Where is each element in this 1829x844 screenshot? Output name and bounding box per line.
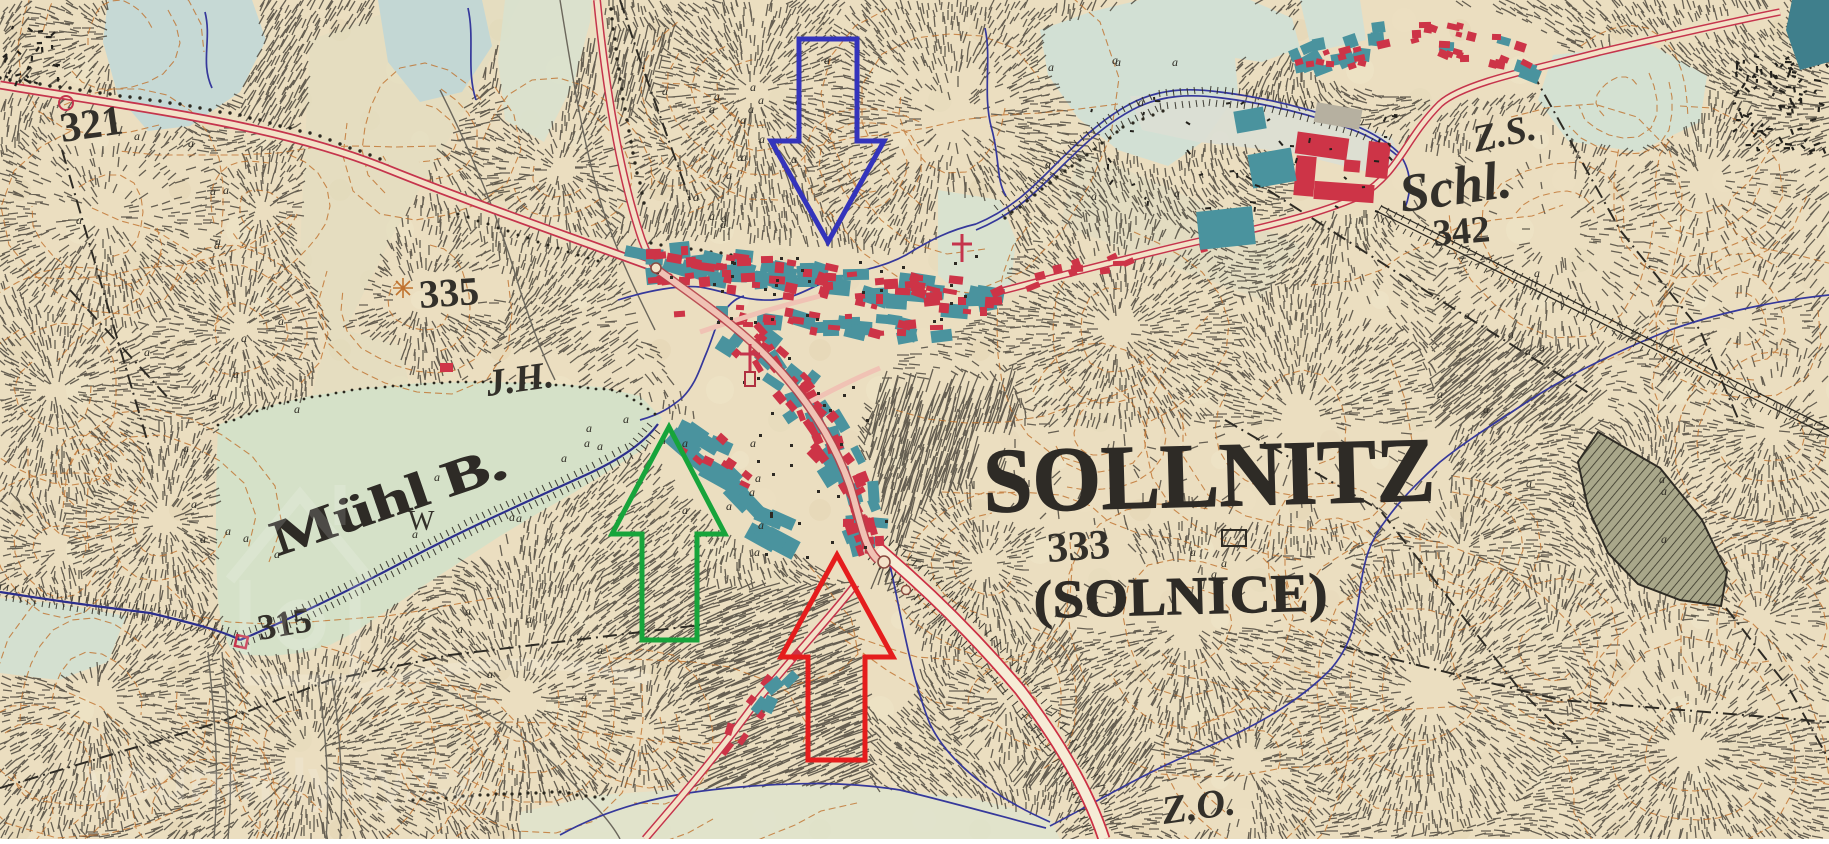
svg-text:a: a — [748, 102, 754, 116]
svg-text:a: a — [750, 80, 756, 94]
svg-text:a: a — [693, 190, 699, 204]
svg-text:a: a — [597, 643, 603, 657]
svg-text:a: a — [586, 421, 592, 435]
svg-text:a: a — [1172, 55, 1178, 69]
svg-text:a: a — [144, 345, 150, 359]
svg-text:a: a — [1437, 387, 1443, 401]
svg-text:a: a — [741, 150, 747, 164]
svg-text:(SOLNICE): (SOLNICE) — [1033, 562, 1328, 630]
svg-text:a: a — [581, 690, 587, 704]
svg-text:a: a — [1582, 303, 1588, 317]
svg-text:a: a — [211, 389, 217, 403]
svg-text:a: a — [1483, 402, 1489, 416]
svg-text:a: a — [662, 84, 668, 98]
svg-text:a: a — [597, 439, 603, 453]
svg-text:a: a — [1661, 484, 1667, 498]
svg-text:a: a — [750, 436, 756, 450]
svg-text:a: a — [754, 545, 760, 559]
svg-text:a: a — [623, 412, 629, 426]
svg-text:a: a — [726, 168, 732, 182]
svg-text:a: a — [682, 436, 688, 450]
svg-text:a: a — [1661, 532, 1667, 546]
svg-text:a: a — [1569, 496, 1575, 510]
svg-text:a: a — [791, 152, 797, 166]
svg-text:a: a — [1525, 344, 1531, 358]
svg-text:a: a — [1508, 327, 1514, 341]
svg-text:a: a — [516, 511, 522, 525]
svg-text:a: a — [1048, 60, 1054, 74]
svg-text:a: a — [223, 183, 229, 197]
svg-text:a: a — [1045, 157, 1051, 171]
svg-text:a: a — [241, 331, 247, 345]
svg-text:a: a — [1091, 189, 1097, 203]
svg-text:a: a — [509, 510, 515, 524]
svg-text:a: a — [1464, 308, 1470, 322]
svg-text:a: a — [233, 367, 239, 381]
svg-text:a: a — [526, 612, 532, 626]
svg-text:a: a — [210, 184, 216, 198]
svg-text:a: a — [183, 441, 189, 455]
svg-text:SOLLNITZ: SOLLNITZ — [982, 418, 1437, 532]
svg-text:W: W — [408, 506, 435, 537]
svg-text:a: a — [1112, 53, 1118, 67]
svg-text:a: a — [1534, 266, 1540, 280]
svg-text:342: 342 — [1431, 208, 1491, 255]
svg-text:a: a — [1138, 95, 1144, 109]
svg-text:a: a — [191, 497, 197, 511]
svg-text:a: a — [134, 129, 140, 143]
svg-text:a: a — [758, 93, 764, 107]
svg-text:a: a — [584, 436, 590, 450]
svg-text:a: a — [755, 471, 761, 485]
svg-text:a: a — [1539, 340, 1545, 354]
svg-text:vodnimlyny.cz: vodnimlyny.cz — [85, 748, 480, 813]
svg-text:a: a — [225, 524, 231, 538]
svg-text:a: a — [561, 451, 567, 465]
svg-text:a: a — [726, 499, 732, 513]
svg-text:a: a — [714, 89, 720, 103]
svg-text:a: a — [1659, 472, 1665, 486]
svg-text:a: a — [214, 238, 220, 252]
svg-text:a: a — [294, 402, 300, 416]
svg-text:a: a — [1526, 476, 1532, 490]
svg-text:a: a — [758, 518, 764, 532]
svg-text:a: a — [1174, 186, 1180, 200]
svg-text:a: a — [76, 213, 82, 227]
svg-text:a: a — [200, 532, 206, 546]
svg-text:a: a — [720, 217, 726, 231]
svg-text:a: a — [188, 136, 194, 150]
svg-text:a: a — [465, 604, 471, 618]
svg-text:321: 321 — [57, 98, 126, 152]
svg-text:a: a — [243, 531, 249, 545]
svg-text:a: a — [457, 622, 463, 636]
svg-text:333: 333 — [1045, 522, 1111, 572]
svg-text:a: a — [740, 113, 746, 127]
svg-text:a: a — [709, 102, 715, 116]
svg-text:a: a — [1190, 545, 1196, 559]
svg-text:335: 335 — [417, 268, 480, 317]
svg-text:a: a — [824, 53, 830, 67]
svg-text:a: a — [682, 503, 688, 517]
svg-text:a: a — [749, 485, 755, 499]
svg-text:a: a — [759, 132, 765, 146]
svg-text:a: a — [278, 314, 284, 328]
svg-text:a: a — [709, 209, 715, 223]
